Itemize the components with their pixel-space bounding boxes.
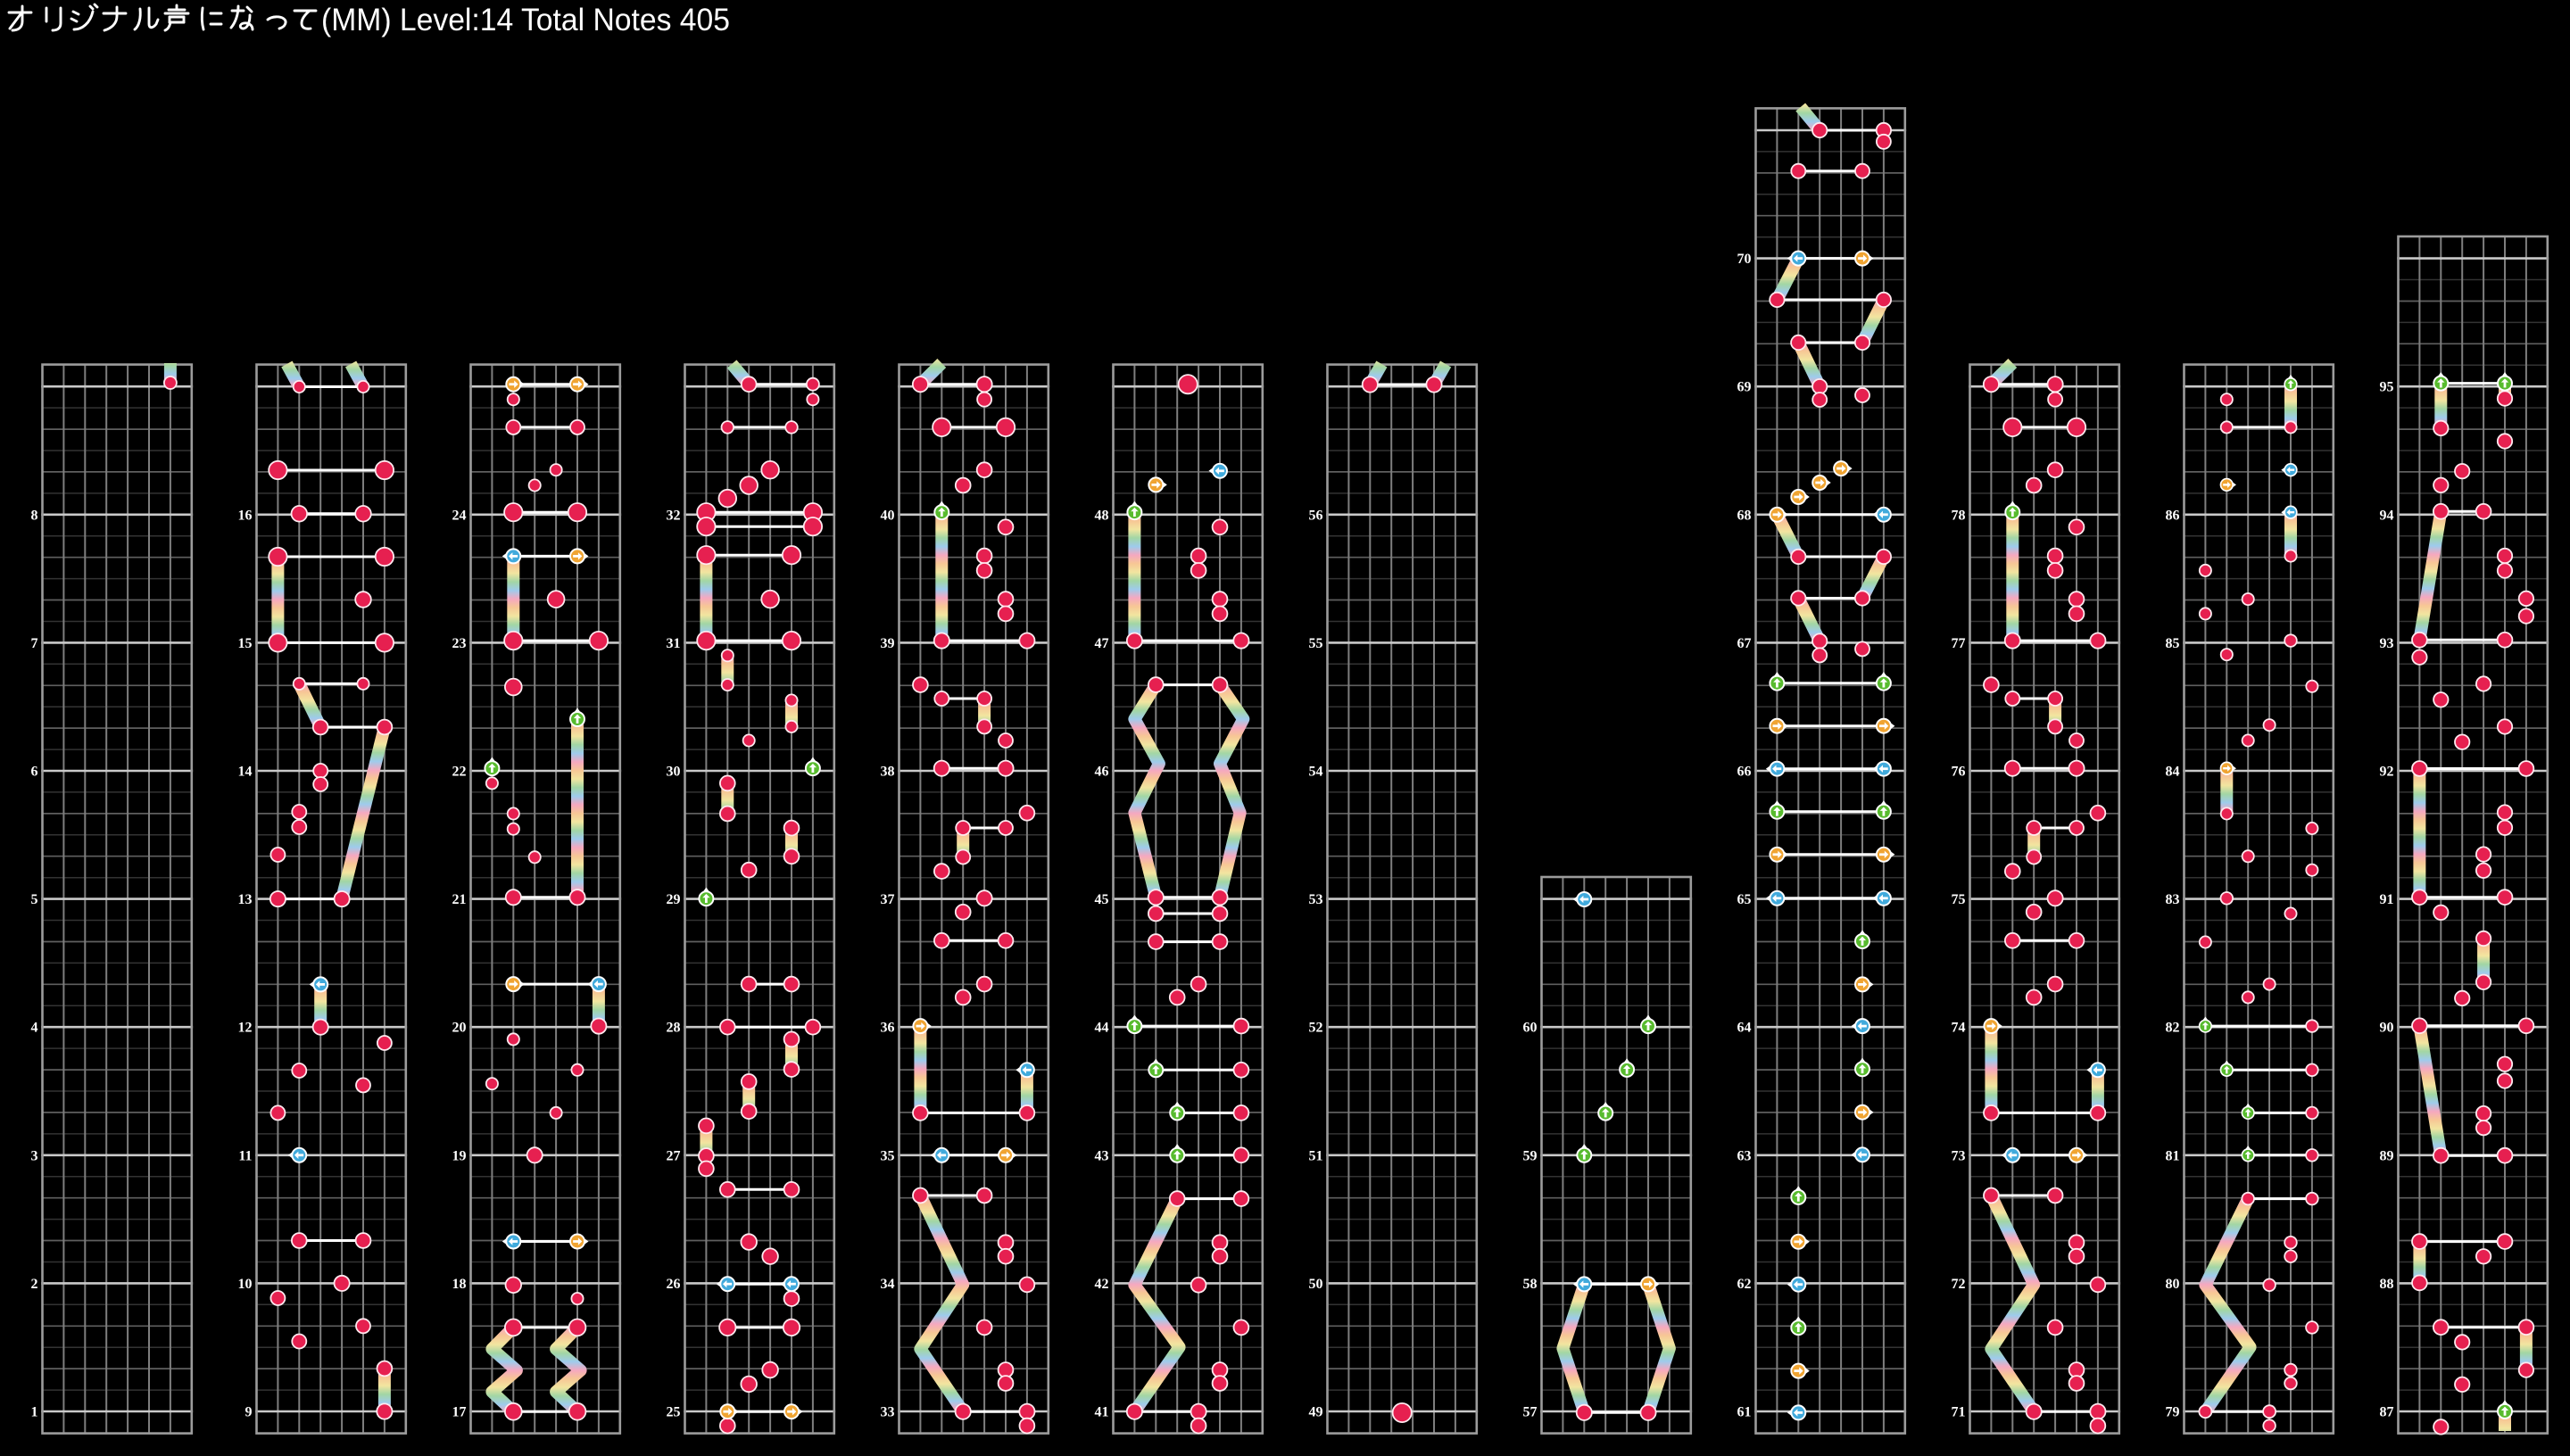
svg-text:52: 52	[1309, 1021, 1323, 1036]
svg-text:78: 78	[1952, 508, 1966, 523]
svg-text:59: 59	[1523, 1148, 1538, 1163]
svg-text:47: 47	[1095, 636, 1109, 651]
svg-text:90: 90	[2380, 1021, 2394, 1036]
svg-text:45: 45	[1095, 892, 1109, 907]
svg-text:19: 19	[452, 1148, 467, 1163]
svg-text:56: 56	[1309, 508, 1323, 523]
svg-text:35: 35	[881, 1148, 895, 1163]
svg-text:25: 25	[667, 1405, 681, 1420]
svg-text:46: 46	[1095, 765, 1109, 780]
svg-text:12: 12	[238, 1021, 253, 1036]
svg-text:87: 87	[2380, 1405, 2394, 1420]
svg-text:77: 77	[1952, 636, 1966, 651]
svg-text:57: 57	[1523, 1405, 1538, 1420]
svg-text:2: 2	[31, 1277, 38, 1292]
svg-text:40: 40	[881, 508, 895, 523]
svg-text:15: 15	[238, 636, 253, 651]
svg-text:50: 50	[1309, 1277, 1323, 1292]
svg-text:31: 31	[667, 636, 681, 651]
svg-text:60: 60	[1523, 1021, 1538, 1036]
svg-text:81: 81	[2166, 1148, 2180, 1163]
svg-text:43: 43	[1095, 1148, 1109, 1163]
svg-text:86: 86	[2166, 508, 2180, 523]
svg-text:92: 92	[2380, 765, 2394, 780]
svg-text:37: 37	[881, 892, 895, 907]
svg-text:34: 34	[881, 1277, 895, 1292]
svg-text:71: 71	[1952, 1405, 1966, 1420]
svg-text:89: 89	[2380, 1148, 2394, 1163]
svg-text:17: 17	[452, 1405, 467, 1420]
svg-text:41: 41	[1095, 1405, 1109, 1420]
svg-text:53: 53	[1309, 892, 1323, 907]
svg-text:10: 10	[238, 1277, 253, 1292]
svg-text:30: 30	[667, 765, 681, 780]
svg-text:18: 18	[452, 1277, 467, 1292]
svg-text:91: 91	[2380, 892, 2394, 907]
svg-text:83: 83	[2166, 892, 2180, 907]
svg-text:48: 48	[1095, 508, 1109, 523]
svg-text:20: 20	[452, 1021, 467, 1036]
svg-text:94: 94	[2380, 508, 2394, 523]
svg-text:7: 7	[31, 636, 38, 651]
svg-text:72: 72	[1952, 1277, 1966, 1292]
svg-text:24: 24	[452, 508, 467, 523]
svg-text:33: 33	[881, 1405, 895, 1420]
svg-text:75: 75	[1952, 892, 1966, 907]
svg-text:76: 76	[1952, 765, 1966, 780]
svg-text:70: 70	[1737, 252, 1752, 267]
svg-text:64: 64	[1737, 1021, 1752, 1036]
svg-text:4: 4	[31, 1021, 38, 1036]
svg-text:74: 74	[1952, 1021, 1966, 1036]
svg-text:69: 69	[1737, 380, 1752, 395]
svg-text:51: 51	[1309, 1148, 1323, 1163]
svg-text:42: 42	[1095, 1277, 1109, 1292]
svg-text:21: 21	[452, 892, 467, 907]
svg-text:54: 54	[1309, 765, 1323, 780]
svg-text:63: 63	[1737, 1148, 1752, 1163]
svg-text:49: 49	[1309, 1405, 1323, 1420]
svg-text:93: 93	[2380, 636, 2394, 651]
svg-text:(MM) Level:14 Total Notes 405: (MM) Level:14 Total Notes 405	[321, 2, 730, 37]
svg-text:62: 62	[1737, 1277, 1752, 1292]
svg-text:8: 8	[31, 508, 38, 523]
svg-text:61: 61	[1737, 1405, 1752, 1420]
svg-text:13: 13	[238, 892, 253, 907]
svg-text:55: 55	[1309, 636, 1323, 651]
svg-text:79: 79	[2166, 1405, 2180, 1420]
svg-text:88: 88	[2380, 1277, 2394, 1292]
svg-text:95: 95	[2380, 380, 2394, 395]
svg-text:65: 65	[1737, 892, 1752, 907]
svg-text:58: 58	[1523, 1277, 1538, 1292]
svg-text:39: 39	[881, 636, 895, 651]
svg-text:1: 1	[31, 1405, 38, 1420]
svg-text:11: 11	[238, 1148, 252, 1163]
svg-text:26: 26	[667, 1277, 681, 1292]
svg-text:38: 38	[881, 765, 895, 780]
svg-text:36: 36	[881, 1021, 895, 1036]
svg-text:5: 5	[31, 892, 38, 907]
svg-text:23: 23	[452, 636, 467, 651]
svg-text:27: 27	[667, 1148, 681, 1163]
svg-text:66: 66	[1737, 765, 1752, 780]
svg-text:9: 9	[245, 1405, 253, 1420]
svg-text:85: 85	[2166, 636, 2180, 651]
svg-text:3: 3	[31, 1148, 38, 1163]
svg-text:44: 44	[1095, 1021, 1109, 1036]
svg-text:84: 84	[2166, 765, 2180, 780]
svg-text:22: 22	[452, 765, 467, 780]
svg-text:82: 82	[2166, 1021, 2180, 1036]
svg-text:28: 28	[667, 1021, 681, 1036]
svg-text:73: 73	[1952, 1148, 1966, 1163]
svg-text:80: 80	[2166, 1277, 2180, 1292]
svg-text:32: 32	[667, 508, 681, 523]
svg-text:6: 6	[31, 765, 38, 780]
svg-text:16: 16	[238, 508, 253, 523]
svg-text:29: 29	[667, 892, 681, 907]
svg-text:67: 67	[1737, 636, 1752, 651]
svg-text:14: 14	[238, 765, 253, 780]
svg-text:68: 68	[1737, 508, 1752, 523]
